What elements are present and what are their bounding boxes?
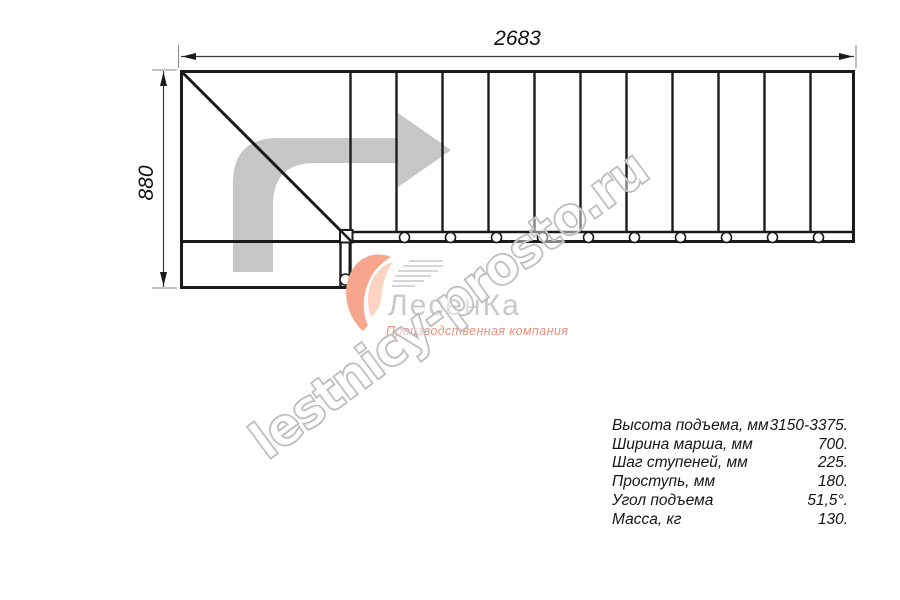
spec-label: Ширина марша, мм: [612, 436, 753, 455]
logo-subtitle: Производственная компания: [386, 324, 568, 338]
spec-value: 3150-3375.: [770, 417, 848, 436]
spec-value: 130.: [818, 511, 848, 530]
direction-arrow-icon: [233, 113, 451, 272]
spec-row-flight-width: Ширина марша, мм 700.: [612, 436, 848, 455]
spec-value: 700.: [818, 436, 848, 455]
spec-row-height: Высота подъема, мм 3150-3375.: [612, 417, 848, 436]
spec-row-angle: Угол подъема 51,5°.: [612, 492, 848, 511]
spec-value: 51,5°.: [807, 492, 848, 511]
newel-post-symbol: [340, 230, 353, 243]
spec-label: Шаг ступеней, мм: [612, 454, 748, 473]
dimension-depth-label: 880: [135, 157, 159, 209]
spec-row-mass: Масса, кг 130.: [612, 511, 848, 530]
dimension-length-label: 2683: [460, 27, 575, 51]
logo-stairs-icon: [392, 261, 443, 286]
spec-label: Угол подъема: [612, 492, 713, 511]
spec-row-tread: Проступь, мм 180.: [612, 473, 848, 492]
spec-row-step-pitch: Шаг ступеней, мм 225.: [612, 454, 848, 473]
spec-label: Проступь, мм: [612, 473, 715, 492]
logo-wordmark: ЛесенКа: [388, 289, 521, 323]
spec-value: 225.: [818, 454, 848, 473]
spec-label: Высота подъема, мм: [612, 417, 769, 436]
spec-value: 180.: [818, 473, 848, 492]
staircase-drawing-page: ЛесенКа Производственная компания 2683 8…: [0, 0, 900, 600]
spec-label: Масса, кг: [612, 511, 681, 530]
spec-table: Высота подъема, мм 3150-3375. Ширина мар…: [612, 417, 848, 529]
